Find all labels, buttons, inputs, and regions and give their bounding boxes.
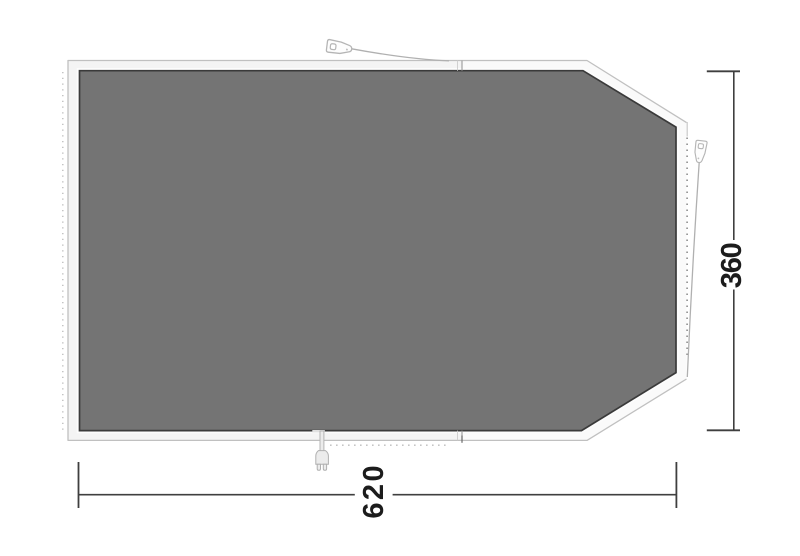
svg-text:620: 620 xyxy=(358,465,390,518)
svg-text:360: 360 xyxy=(716,242,748,288)
